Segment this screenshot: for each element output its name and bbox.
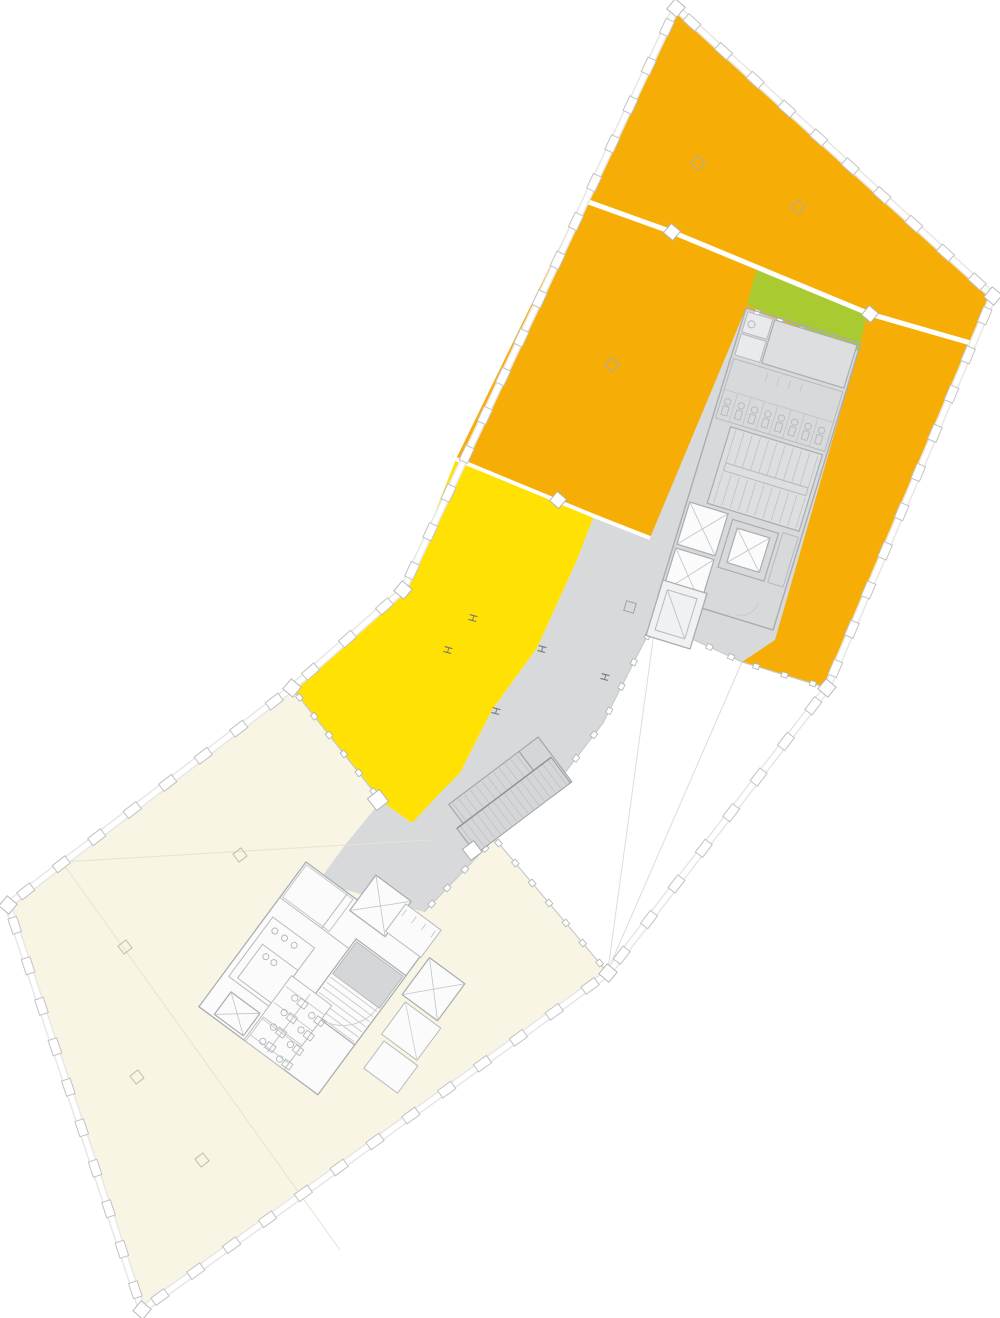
floor-plan: HHHHH [0, 0, 1000, 1318]
void-sight-line-2 [608, 662, 742, 970]
floor-plan-page: HHHHH [0, 0, 1000, 1318]
zones [8, 8, 993, 1310]
